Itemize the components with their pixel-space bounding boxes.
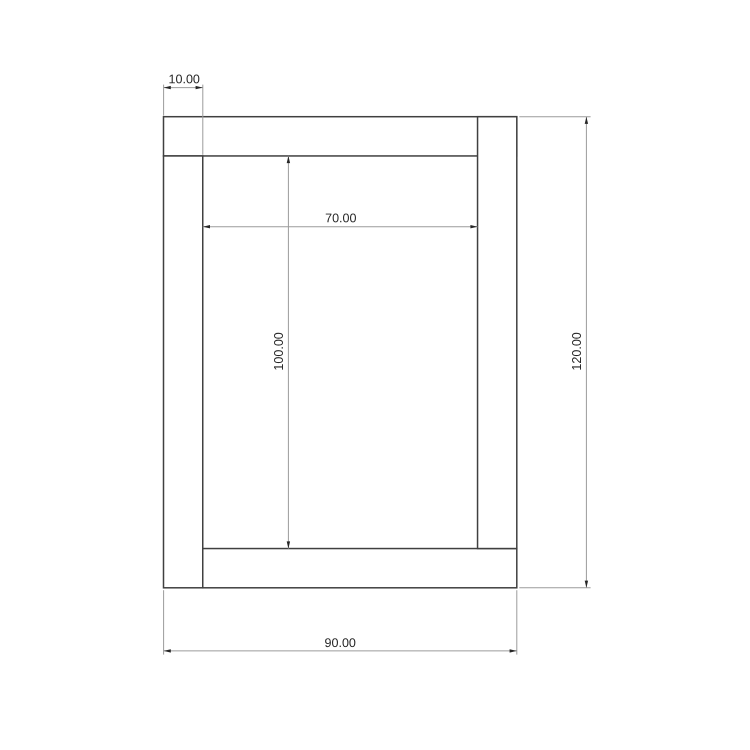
svg-text:10.00: 10.00 bbox=[168, 72, 199, 86]
svg-text:70.00: 70.00 bbox=[325, 211, 356, 225]
svg-text:120.00: 120.00 bbox=[570, 332, 584, 370]
svg-text:90.00: 90.00 bbox=[324, 636, 355, 650]
svg-text:100.00: 100.00 bbox=[272, 332, 286, 370]
